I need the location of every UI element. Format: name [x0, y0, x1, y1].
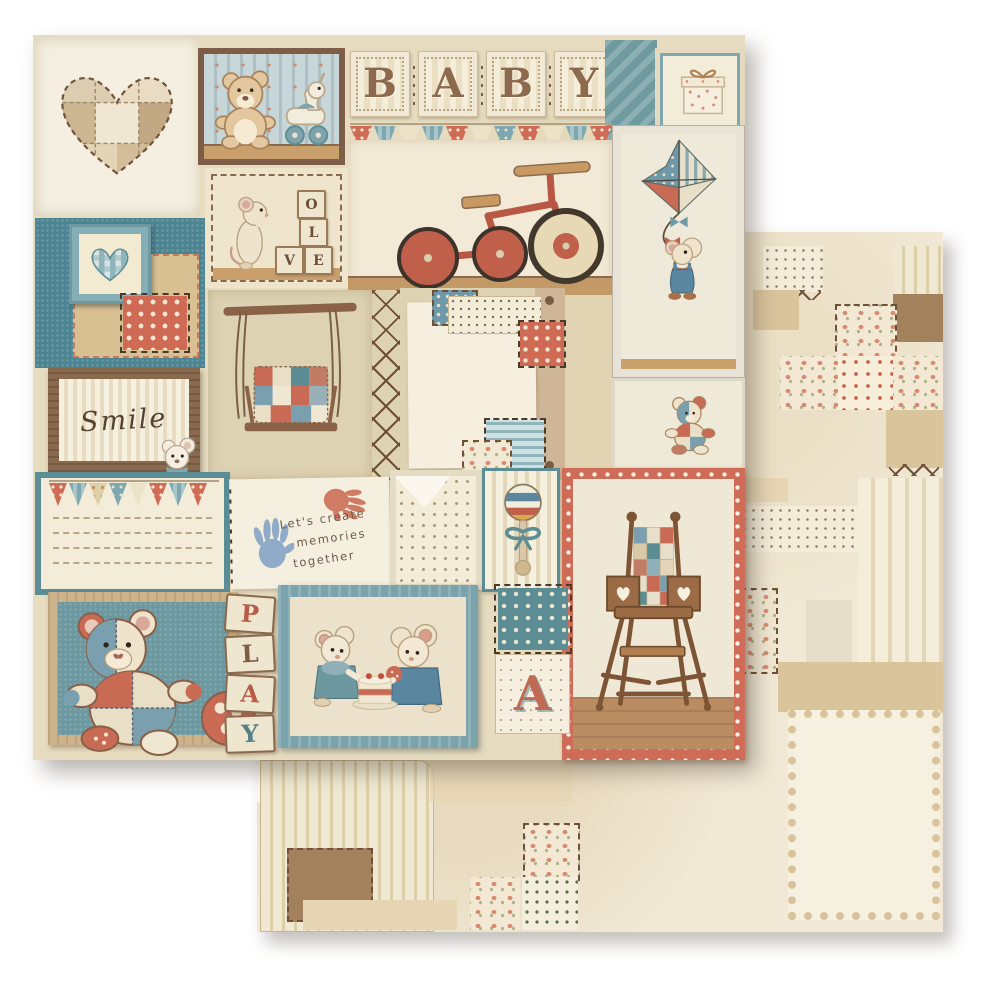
journal-panel: [35, 472, 230, 595]
back-patch-brown: [893, 294, 943, 342]
play-block: P: [224, 593, 277, 634]
baby-block-letter: A: [432, 64, 463, 104]
red-polka-patch: [123, 296, 187, 350]
rattle-panel: [482, 468, 560, 592]
play-block: L: [224, 634, 276, 675]
stitch-connector: [410, 63, 418, 105]
baby-block: B: [486, 51, 546, 117]
porch-swing-illustration: [208, 290, 372, 480]
baby-rattle-illustration: [491, 475, 555, 591]
baby-block-letter: B: [499, 64, 533, 104]
journal-lines: [41, 504, 224, 564]
letter-a: A: [514, 666, 551, 722]
front-sheet: B A B Y: [33, 35, 745, 760]
smile-text: Smile: [80, 402, 169, 438]
bunting-flag: [69, 483, 87, 506]
mice-sharing-cake-illustration: [290, 603, 466, 731]
teddy-ball-panel: [48, 592, 238, 745]
back-patch-floral: [780, 356, 838, 410]
stitch-connector: [546, 63, 554, 105]
high-chair-illustration: [573, 485, 734, 723]
mouse-love-panel: O L V E: [205, 168, 348, 288]
dashed-line: [53, 517, 212, 519]
letter-a-card: A: [495, 654, 570, 734]
envelope-pocket: [396, 476, 476, 584]
envelope-panel: [390, 470, 482, 590]
love-block: O: [297, 190, 326, 219]
love-block: V: [275, 246, 304, 275]
stitch-connector: [478, 63, 486, 105]
play-blocks-stack: P L A Y: [225, 595, 275, 755]
patchwork-heart-panel: [35, 38, 200, 215]
memories-text: Let's create memories together: [279, 506, 372, 571]
baby-block-letter: Y: [570, 64, 599, 104]
back-patch-floral: [470, 877, 520, 930]
high-chair-inner: [573, 479, 734, 749]
baby-block-letter: B: [363, 64, 397, 104]
back-patch-grey: [806, 600, 852, 664]
stitch-row: [889, 464, 939, 476]
baby-block: B: [350, 51, 410, 117]
play-block-letter: Y: [241, 722, 259, 747]
play-block-letter: L: [241, 642, 259, 667]
back-patch-floral: [835, 304, 897, 362]
teal-dotted-patch: [498, 588, 568, 650]
bunting-flag: [149, 483, 167, 506]
mice-cake-inner: [290, 597, 466, 736]
back-band-tan: [303, 900, 457, 930]
red-polka-patch: [520, 322, 564, 366]
back-patch-faint: [430, 760, 572, 802]
back-patch-tan-light: [740, 478, 788, 502]
frame-mat: [79, 234, 141, 294]
scrapbook-paper-product-photo: B A B Y: [0, 0, 1000, 1000]
teddy-ball-inner: [58, 602, 228, 735]
wood-knob: [545, 296, 554, 305]
small-teddy-panel: [612, 378, 745, 470]
love-block: E: [304, 246, 333, 275]
stitched-spine: [227, 483, 235, 583]
dashed-line: [53, 562, 212, 564]
back-patch-dotted-dark: [522, 877, 578, 930]
bunting-flag: [189, 483, 207, 506]
small-patchwork-teddy-illustration: [659, 393, 723, 457]
bunting-flag: [49, 483, 67, 506]
kite-panel-inner: [621, 134, 736, 369]
wood-floor: [621, 359, 736, 369]
patchwork-heart-illustration: [49, 48, 185, 198]
back-band-tan: [778, 662, 943, 712]
kite-mouse-panel: [612, 125, 745, 378]
back-patch-red-dotted: [838, 356, 893, 410]
cross-stitch-seam: [372, 290, 400, 480]
back-patch-striped: [893, 246, 943, 294]
nursery-wallpaper: [204, 54, 339, 159]
swing-panel: [208, 290, 372, 480]
denim-panel: [35, 218, 205, 368]
dashed-line: [53, 547, 212, 549]
back-patch-dotted-band: [740, 506, 865, 552]
tricycle-illustration: [348, 140, 612, 295]
mouse-flying-kite-illustration: [625, 136, 733, 308]
dashed-line: [53, 532, 212, 534]
back-stamp-frame: [788, 710, 940, 920]
back-patch-floral: [523, 823, 580, 881]
envelope-flap: [396, 476, 452, 508]
mini-bunting: [49, 480, 219, 506]
baby-blocks-row: B A B Y: [350, 51, 614, 117]
gift-panel-inner: [660, 53, 740, 131]
bunting-flag: [169, 483, 187, 506]
bunting-flag: [109, 483, 127, 506]
smile-frame-panel: Smile: [48, 368, 200, 472]
memories-line: together: [292, 546, 371, 571]
play-block-letter: P: [240, 601, 260, 626]
journal-card: [41, 478, 224, 589]
play-block-letter: A: [240, 682, 260, 707]
gingham-heart-illustration: [88, 244, 132, 284]
bunting-flag: [129, 483, 147, 506]
bunting-flag: [89, 483, 107, 506]
teddy-and-horse-illustration: [204, 56, 339, 155]
baby-block: A: [418, 51, 478, 117]
tricycle-panel: [348, 140, 612, 295]
gift-box-illustration: [671, 58, 735, 122]
high-chair-panel: [562, 468, 745, 760]
back-patch-tan: [886, 410, 943, 468]
back-patch-floral: [893, 356, 943, 410]
back-patch-dotted: [763, 246, 823, 292]
patched-note-panel: [400, 288, 565, 480]
back-patch-tan: [753, 290, 799, 330]
blue-frame: [69, 224, 151, 304]
back-patch-floral-strip: [740, 588, 778, 674]
memories-line: memories: [295, 526, 369, 550]
teddy-horse-panel: [198, 48, 345, 165]
love-block: L: [299, 218, 328, 247]
play-block: A: [224, 674, 276, 715]
memories-panel: Let's create memories together: [229, 477, 391, 590]
gift-panel: [655, 48, 745, 136]
mice-cake-panel: [278, 585, 478, 748]
play-block: Y: [224, 714, 275, 754]
white-mouse-figurine: [156, 434, 198, 476]
